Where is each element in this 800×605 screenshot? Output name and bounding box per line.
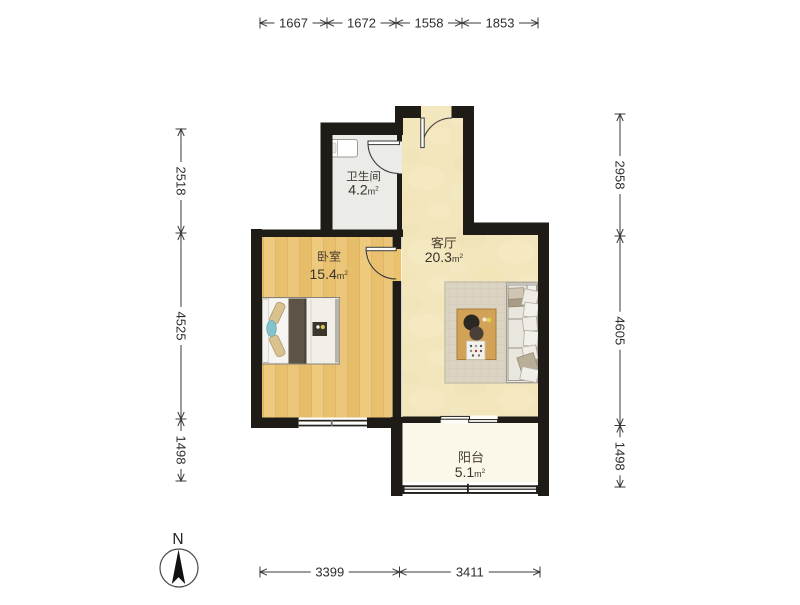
svg-text:1498: 1498 [613, 442, 628, 471]
svg-text:3411: 3411 [456, 565, 484, 580]
svg-text:1853: 1853 [486, 16, 515, 31]
svg-text:2958: 2958 [613, 161, 628, 190]
svg-text:4525: 4525 [174, 312, 189, 341]
svg-text:4605: 4605 [613, 316, 628, 345]
svg-text:1498: 1498 [174, 436, 189, 465]
svg-text:1667: 1667 [279, 16, 308, 31]
svg-text:1672: 1672 [347, 16, 376, 31]
svg-text:3399: 3399 [315, 565, 344, 580]
svg-text:2518: 2518 [174, 167, 189, 196]
svg-text:1558: 1558 [415, 16, 444, 31]
svg-text:N: N [172, 531, 183, 548]
